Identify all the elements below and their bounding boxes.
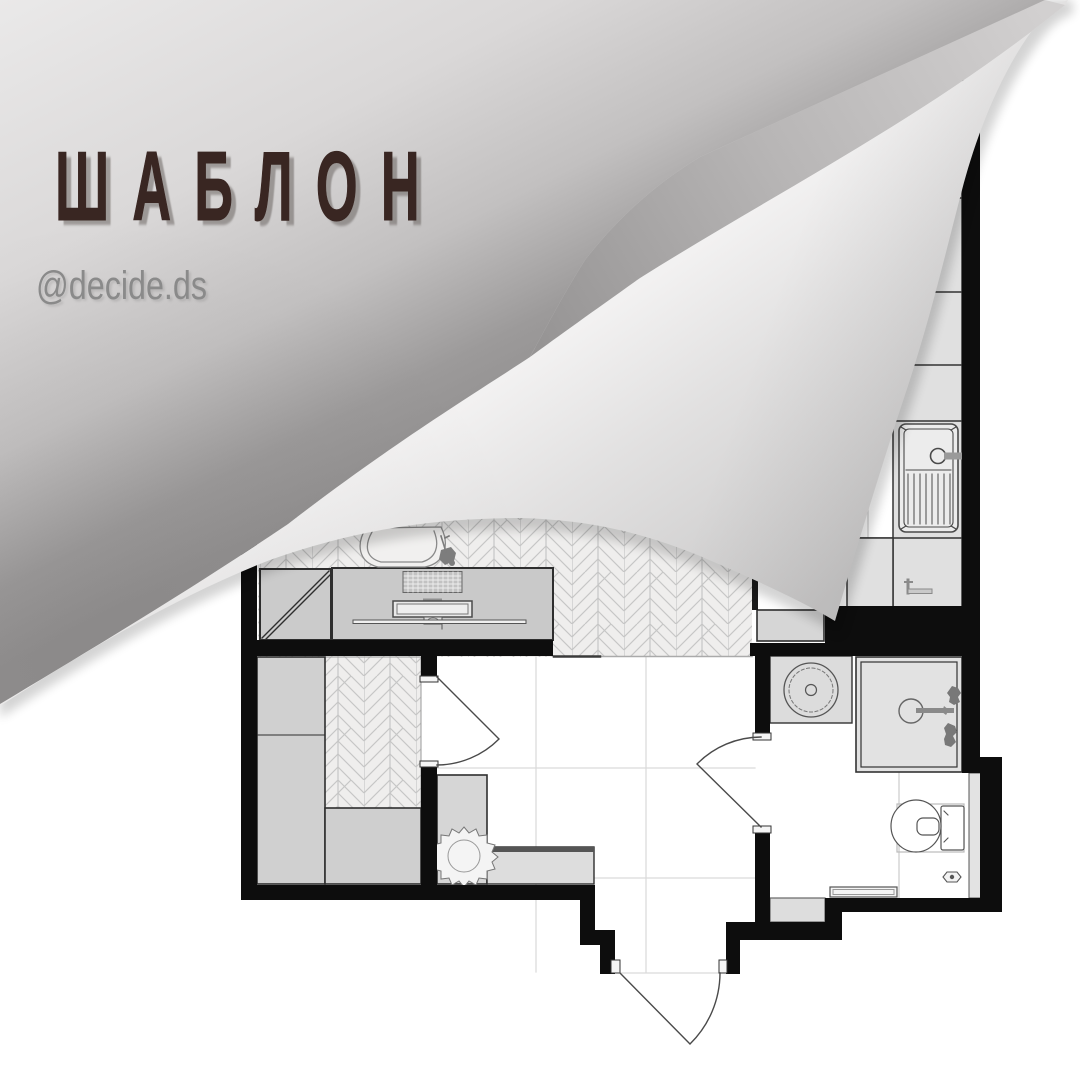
svg-text:ШАБЛОН: ШАБЛОН (55, 131, 443, 241)
svg-text:@decide.ds: @decide.ds (36, 264, 207, 308)
